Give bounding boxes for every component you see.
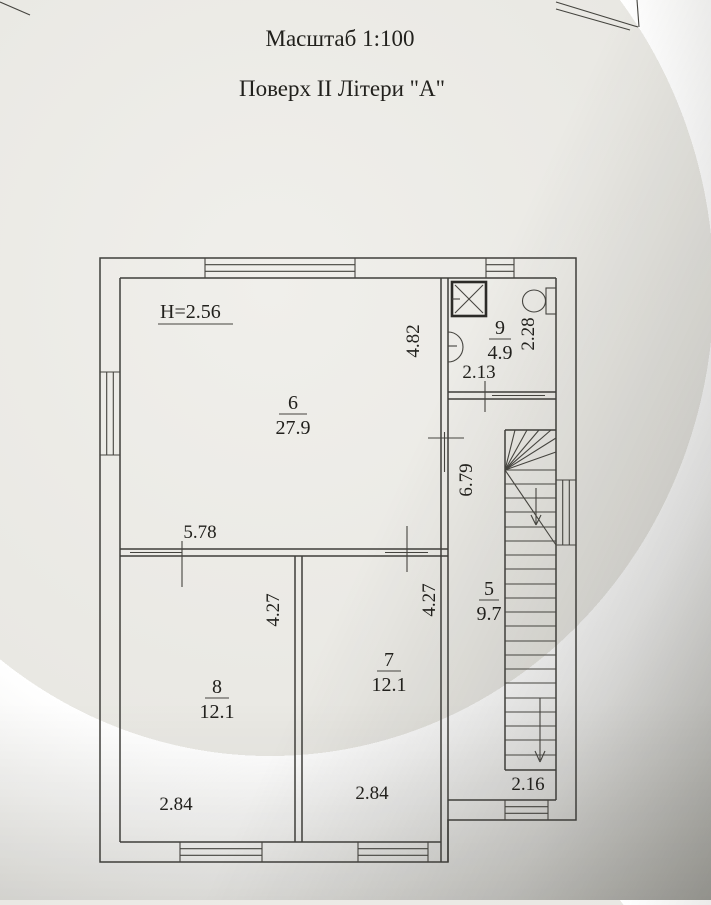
window-bottom-stairhall bbox=[505, 800, 548, 820]
window-bottom-room7 bbox=[358, 842, 428, 862]
room6-area: 27.9 bbox=[276, 417, 311, 439]
room5-area: 9.7 bbox=[477, 603, 502, 625]
paper-edge-line bbox=[556, 9, 630, 30]
window-bottom-room8 bbox=[180, 842, 262, 862]
dim-room6-width: 5.78 bbox=[183, 522, 216, 543]
stair-treads bbox=[505, 470, 556, 755]
toilet-icon bbox=[523, 288, 557, 314]
room7-area: 12.1 bbox=[372, 674, 407, 696]
dim-room7-width: 2.84 bbox=[355, 783, 389, 804]
staircase bbox=[505, 430, 556, 770]
room5-number: 5 bbox=[484, 578, 494, 600]
dim-room8-depth: 4.27 bbox=[263, 593, 284, 626]
room9-area: 4.9 bbox=[488, 342, 513, 364]
room8-area: 12.1 bbox=[200, 701, 235, 723]
room9-number: 9 bbox=[495, 317, 505, 339]
window-top-room6 bbox=[205, 258, 355, 278]
room7-number: 7 bbox=[384, 649, 394, 671]
window-left-room6 bbox=[100, 372, 120, 455]
stair-direction-arrow-lower bbox=[535, 698, 545, 762]
window-top-room9 bbox=[486, 258, 514, 278]
paper-edge-line bbox=[556, 2, 638, 27]
stair-winder-steps bbox=[505, 430, 556, 470]
dim-room7-depth: 4.27 bbox=[419, 583, 440, 616]
scale-title: Масштаб 1:100 bbox=[266, 26, 415, 51]
dim-room9-depth: 2.28 bbox=[518, 317, 539, 350]
stair-break-line bbox=[505, 470, 556, 545]
room8-number: 8 bbox=[212, 676, 222, 698]
dim-hall-length: 6.79 bbox=[456, 463, 477, 496]
paper-edge-line bbox=[637, 0, 639, 27]
dim-room6-depth: 4.82 bbox=[403, 324, 424, 357]
floor-plan: 6 27.9 9 4.9 5 9.7 7 12.1 8 12.1 H=2.56 … bbox=[100, 258, 576, 862]
dim-room9-width: 2.13 bbox=[462, 362, 495, 383]
dim-stairhall-width: 2.16 bbox=[511, 774, 544, 795]
ceiling-height-label: H=2.56 bbox=[160, 301, 221, 323]
dim-room8-width: 2.84 bbox=[159, 794, 193, 815]
stair-direction-arrow-upper bbox=[531, 488, 541, 525]
sink-icon bbox=[448, 332, 463, 362]
paper-edge-line bbox=[0, 2, 30, 15]
floorplan-document: Масштаб 1:100 Поверх II Літери "А" bbox=[0, 0, 711, 900]
ceiling-height-note: H=2.56 bbox=[158, 301, 233, 324]
floor-title: Поверх II Літери "А" bbox=[239, 76, 445, 101]
shower-icon bbox=[452, 282, 486, 316]
window-right-stairhall bbox=[556, 480, 576, 545]
room6-number: 6 bbox=[288, 392, 298, 414]
